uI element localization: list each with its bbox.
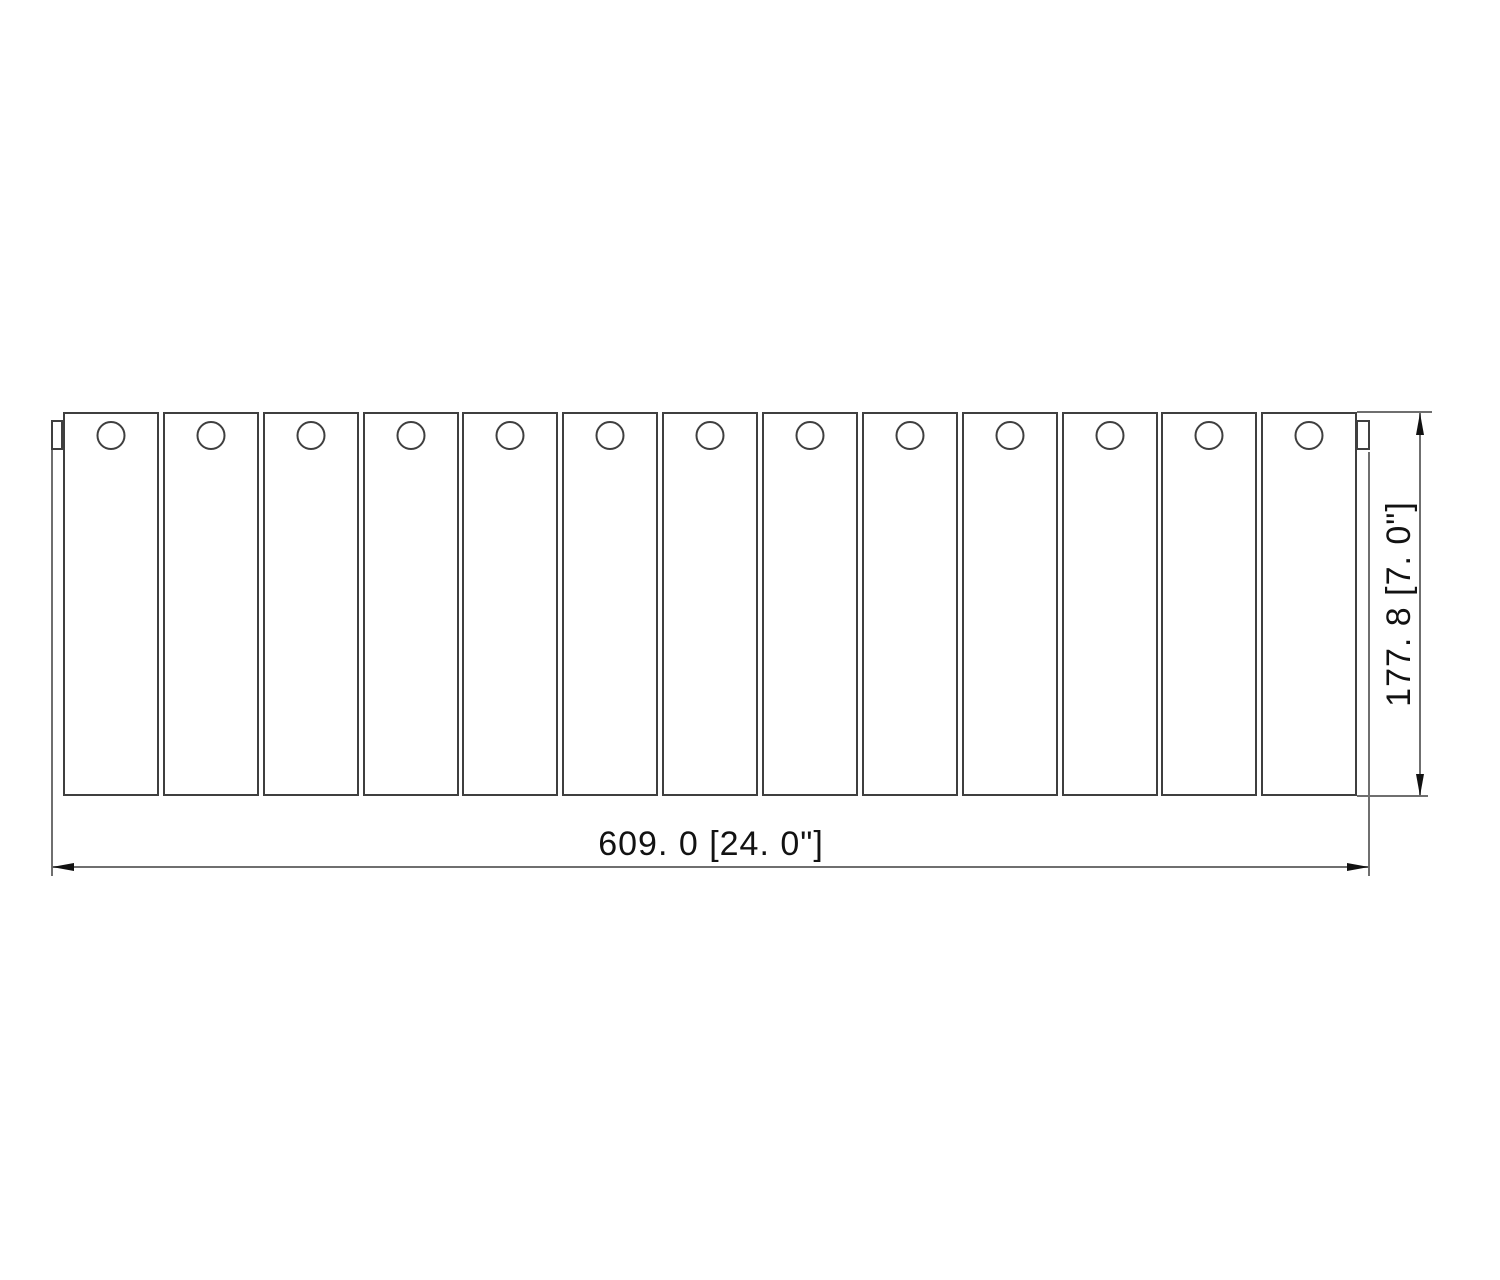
arrow-up-icon — [1416, 413, 1424, 435]
panel-slat — [962, 412, 1058, 796]
right-mounting-tab — [1356, 420, 1370, 450]
panel-slat — [163, 412, 259, 796]
mounting-hole-circle — [1095, 421, 1124, 450]
arrow-left-icon — [52, 863, 74, 871]
mounting-hole-circle — [396, 421, 425, 450]
width-dimension-label: 609. 0 [24. 0"] — [598, 826, 824, 862]
left-mounting-tab — [51, 420, 63, 450]
mounting-hole-circle — [496, 421, 525, 450]
drawing-canvas: 609. 0 [24. 0"] 177. 8 [7. 0"] — [0, 0, 1500, 1280]
mounting-hole-circle — [895, 421, 924, 450]
arrow-down-icon — [1416, 774, 1424, 796]
width-extension-line-right — [1368, 452, 1370, 876]
mounting-hole-circle — [696, 421, 725, 450]
panel-slat — [263, 412, 359, 796]
mounting-hole-circle — [995, 421, 1024, 450]
height-dimension-label: 177. 8 [7. 0"] — [1381, 501, 1417, 707]
mounting-hole-circle — [97, 421, 126, 450]
panel-slat — [462, 412, 558, 796]
panel-slat — [562, 412, 658, 796]
mounting-hole-circle — [795, 421, 824, 450]
width-extension-line-left — [51, 450, 53, 876]
height-dimension-line — [1419, 413, 1421, 795]
mounting-hole-circle — [196, 421, 225, 450]
arrow-right-icon — [1347, 863, 1369, 871]
panel-slat — [1261, 412, 1357, 796]
panel-slat — [1062, 412, 1158, 796]
width-dimension-line — [52, 866, 1369, 868]
panel-slat — [1161, 412, 1257, 796]
mounting-hole-circle — [596, 421, 625, 450]
panel-slat — [762, 412, 858, 796]
panel-slat — [662, 412, 758, 796]
panel-slat — [862, 412, 958, 796]
mounting-hole-circle — [1195, 421, 1224, 450]
mounting-hole-circle — [296, 421, 325, 450]
panel-slat — [363, 412, 459, 796]
panel-slat — [63, 412, 159, 796]
mounting-hole-circle — [1295, 421, 1324, 450]
